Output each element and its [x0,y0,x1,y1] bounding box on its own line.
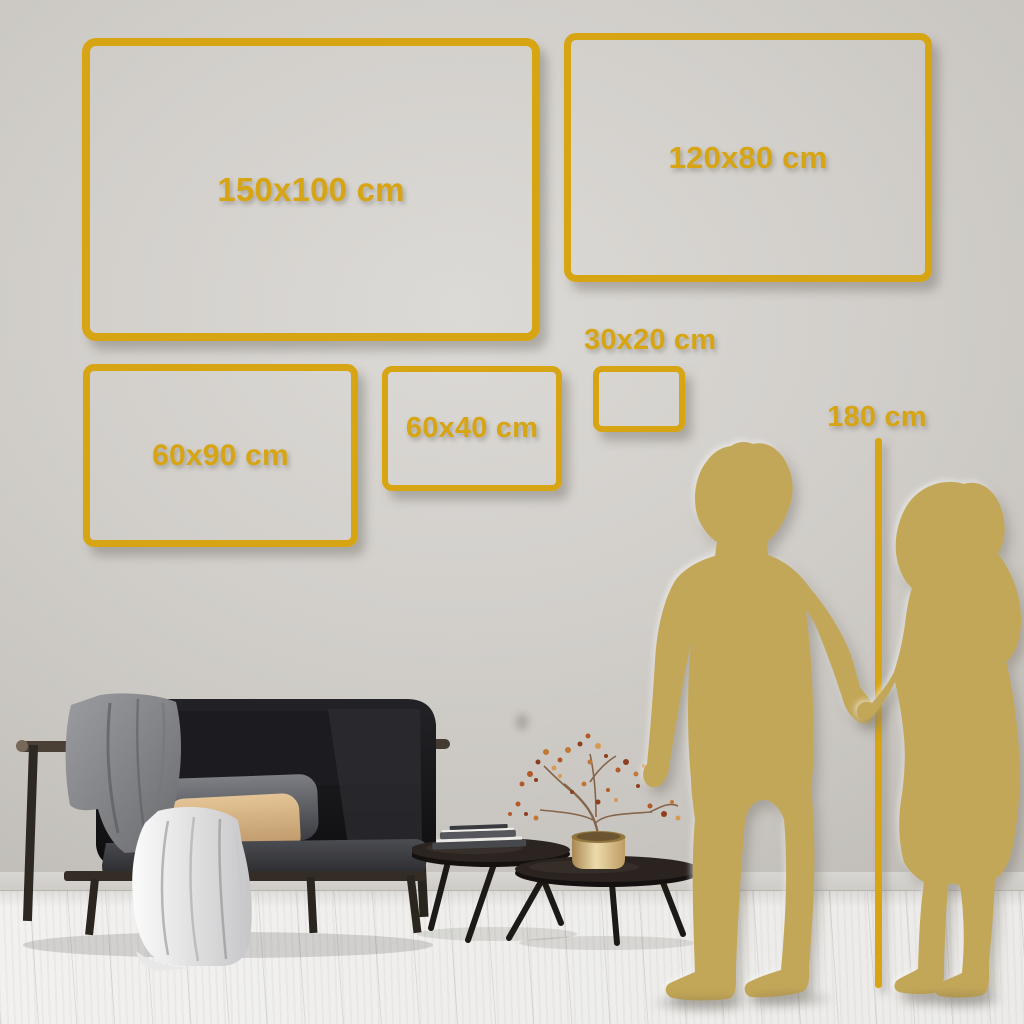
size-guide-image: 150x100 cm 120x80 cm 60x90 cm 60x40 cm 3… [0,0,1024,1024]
size-frame-30x20 [593,366,685,432]
size-label-30x20: 30x20 cm [584,324,754,357]
man-foot-shadow [655,998,745,1008]
books-stack [432,823,527,849]
size-frame-60x90: 60x90 cm [83,364,358,547]
woman-foot-shadow [905,994,1000,1004]
man-foot-shadow-2 [750,994,830,1004]
size-label-60x90: 60x90 cm [152,439,289,473]
size-label-60x40: 60x40 cm [406,412,538,445]
size-label-150x100: 150x100 cm [217,171,404,209]
height-reference-label: 180 cm [818,401,936,434]
size-label-120x80: 120x80 cm [669,140,828,176]
woman-silhouette [846,472,1024,1012]
size-frame-60x40: 60x40 cm [382,366,562,491]
throw-cloth [132,807,252,971]
brass-vase [572,831,626,869]
coffee-table-large [412,838,570,940]
size-frame-150x100: 150x100 cm [82,38,540,341]
sofa-illustration [8,693,458,973]
size-frame-120x80: 120x80 cm [564,33,932,282]
